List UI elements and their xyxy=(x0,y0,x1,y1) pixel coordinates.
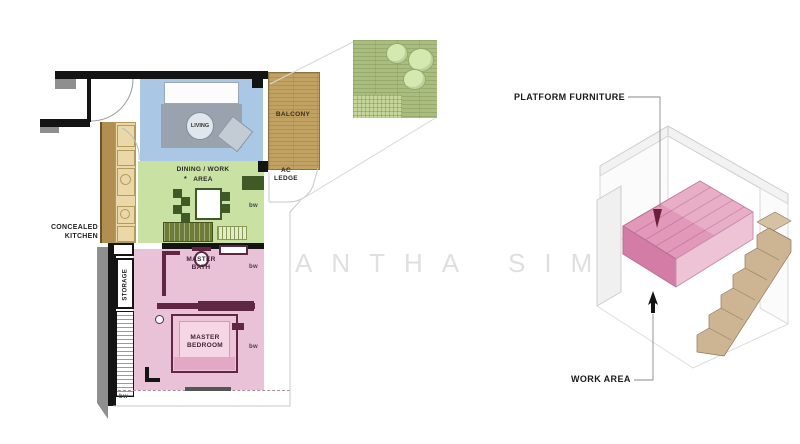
iso-platform-highlight xyxy=(661,181,753,235)
dining-table xyxy=(195,188,222,220)
wall-left-lower-shadow xyxy=(97,247,108,419)
iso-platform-front xyxy=(623,226,676,287)
iso-left-wall xyxy=(597,186,621,306)
page: ANTHA SIM STORAGE LIVING xyxy=(0,0,800,444)
storage-cabinet: STORAGE xyxy=(116,258,134,309)
wall-left-stub-shadow xyxy=(40,127,59,133)
iso-platform-top xyxy=(623,181,753,259)
platform-grain xyxy=(667,207,744,253)
iso-platform-side xyxy=(676,212,753,287)
wall-balcony-stub-bottom xyxy=(258,161,268,172)
master-bath-label: MASTER BATH xyxy=(175,256,227,272)
master-bedroom-label: MASTER BEDROOM xyxy=(172,334,238,350)
turf-grid-patch xyxy=(353,95,402,118)
bw-label: bw xyxy=(119,394,128,402)
balcony-detail-inset xyxy=(353,40,437,118)
work-area-label: WORK AREA xyxy=(571,374,631,385)
bath-bed-divider-thick xyxy=(198,301,254,311)
platform-arrow-down-icon xyxy=(653,209,662,228)
coffee-table: LIVING xyxy=(186,112,214,140)
watermark-left: ANTHA xyxy=(295,248,478,279)
platform-leader-line xyxy=(628,97,660,207)
iso-back-left-beam xyxy=(600,126,668,176)
shoe-bench xyxy=(217,226,247,240)
stair-treads xyxy=(709,228,791,340)
living-label: LIVING xyxy=(191,123,209,129)
work-area-leader-line xyxy=(634,314,653,380)
iso-right-wall xyxy=(760,188,788,324)
wall-top-shadow xyxy=(55,79,76,89)
wall-bath-divider xyxy=(162,243,264,249)
fridge xyxy=(117,125,135,147)
platform-grain xyxy=(645,194,722,240)
work-area-arrow-up-icon xyxy=(648,291,658,313)
sink-basin xyxy=(120,174,131,185)
ac-ledge-label: AC LEDGE xyxy=(271,167,301,183)
bw-label: bw xyxy=(249,344,258,352)
bed-pillows xyxy=(174,357,235,370)
wall-balcony-stub-top xyxy=(252,79,263,88)
corner-wall-v xyxy=(145,367,149,382)
iso-back-left-wall xyxy=(600,136,668,252)
tv-console xyxy=(164,82,239,104)
concealed-kitchen-label: CONCEALED KITCHEN xyxy=(40,224,98,242)
hob-burner xyxy=(120,209,130,219)
dining-label: DINING / WORK xyxy=(160,166,246,174)
bw-label: bw xyxy=(249,264,258,272)
dining-chair xyxy=(221,192,230,201)
shower-screen-side xyxy=(162,251,166,296)
pouf-stool xyxy=(403,69,426,90)
iso-floor-edge xyxy=(597,306,788,368)
wardrobe xyxy=(116,311,134,397)
watermark-right: SIM xyxy=(508,248,611,279)
wall-top xyxy=(55,71,268,79)
db-box xyxy=(112,243,134,256)
platform-grain xyxy=(656,200,733,246)
wall-left-stub xyxy=(40,119,90,127)
dining-chair xyxy=(221,204,230,213)
isometric-room xyxy=(597,97,791,380)
wall-lamp xyxy=(155,315,164,324)
dining-chair xyxy=(181,213,190,222)
wall-left-lower xyxy=(108,243,116,406)
storage-label: STORAGE xyxy=(122,265,130,305)
entry-door-leaf xyxy=(87,79,91,122)
pouf-stool xyxy=(386,43,408,64)
dining-label-2: AREA xyxy=(160,176,246,184)
dining-chair xyxy=(181,197,190,206)
stair-landing xyxy=(757,212,791,231)
platform-furniture-label: PLATFORM FURNITURE xyxy=(514,92,625,103)
bw-label: bw xyxy=(249,203,258,211)
entry-door-arc xyxy=(91,79,133,121)
window-sill xyxy=(185,387,231,391)
bedside-table xyxy=(232,323,244,330)
balcony-area xyxy=(268,72,320,170)
iso-back-right-beam xyxy=(668,126,788,204)
dining-star: * xyxy=(184,176,187,185)
bench xyxy=(163,222,213,242)
platform-grain xyxy=(634,187,711,233)
balcony-label: BALCONY xyxy=(270,111,316,119)
kitchen-cabinet-2 xyxy=(117,226,135,242)
staircase xyxy=(697,228,791,356)
vanity xyxy=(219,245,248,255)
kitchen-cabinet xyxy=(117,150,135,166)
